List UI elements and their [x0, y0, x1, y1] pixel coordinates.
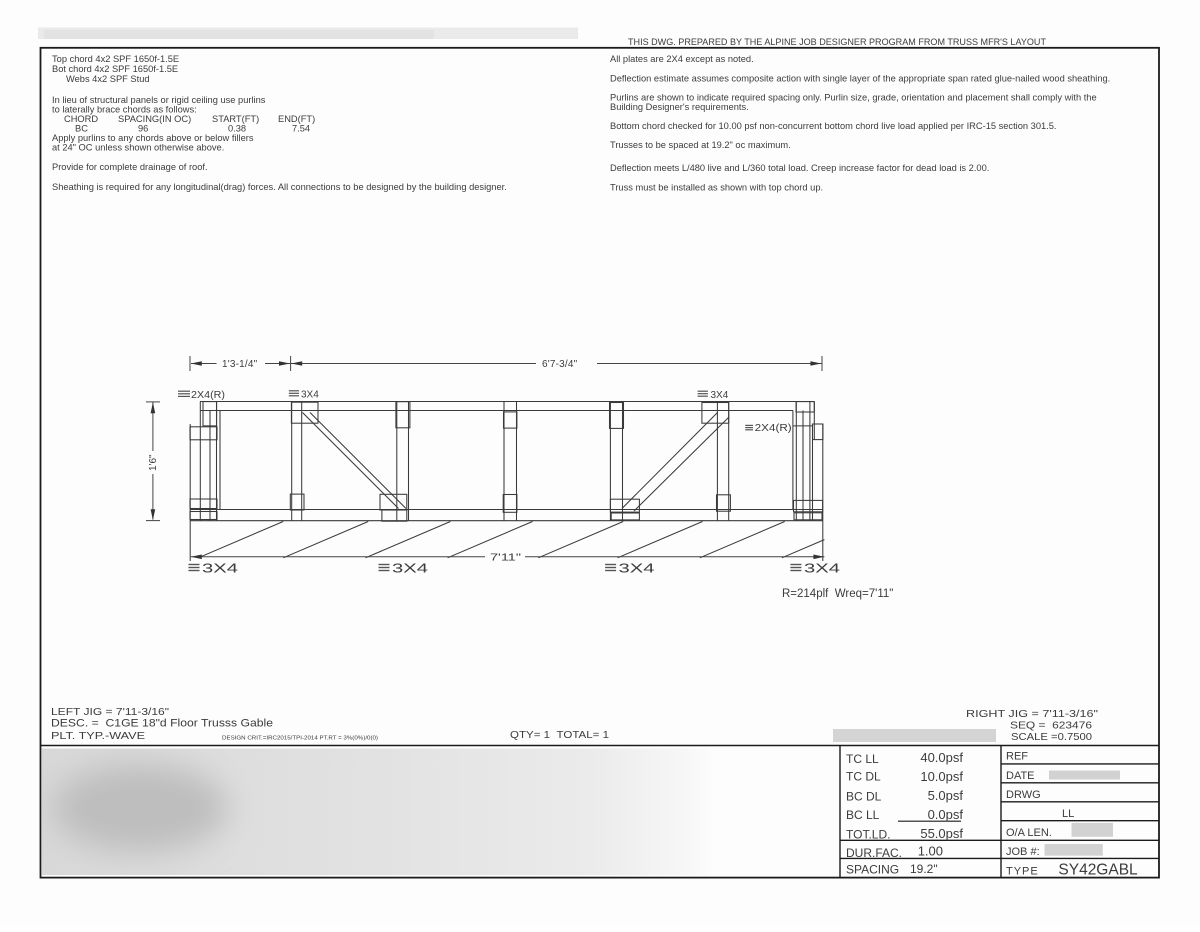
svg-text:REF: REF: [1006, 751, 1028, 763]
svg-text:DRWG: DRWG: [1006, 789, 1041, 801]
svg-text:0.0psf: 0.0psf: [928, 807, 964, 822]
svg-text:1'3-1/4": 1'3-1/4": [222, 359, 258, 370]
svg-text:SY42GABL: SY42GABL: [1058, 862, 1138, 879]
svg-text:Trusses to be spaced at 19.2": Trusses to be spaced at 19.2" oc maximum…: [610, 140, 791, 150]
svg-text:3X4: 3X4: [392, 561, 428, 576]
svg-text:JOB #:: JOB #:: [1006, 846, 1040, 858]
svg-text:Top chord 4x2 SPF 1650f-1.5E: Top chord 4x2 SPF 1650f-1.5E: [52, 54, 179, 64]
svg-text:SEQ = 623476: SEQ = 623476: [1010, 720, 1092, 732]
svg-text:19.2": 19.2": [910, 862, 938, 876]
svg-text:40.0psf: 40.0psf: [920, 750, 963, 765]
svg-text:DESC. = C1GE 18"d Floor Truss: DESC. = C1GE 18"d Floor Trusss Gable: [51, 718, 273, 730]
svg-text:55.0psf: 55.0psf: [920, 826, 963, 841]
svg-text:RIGHT JIG = 7'11-3/16": RIGHT JIG = 7'11-3/16": [966, 708, 1098, 720]
svg-text:LEFT JIG = 7'11-3/16": LEFT JIG = 7'11-3/16": [51, 707, 170, 718]
svg-text:PLT. TYP.-WAVE: PLT. TYP.-WAVE: [51, 730, 145, 742]
svg-text:3X4: 3X4: [711, 390, 729, 401]
svg-text:10.0psf: 10.0psf: [920, 769, 963, 784]
svg-text:1.00: 1.00: [918, 844, 943, 859]
svg-text:Deflection meets L/480 live an: Deflection meets L/480 live and L/360 to…: [610, 163, 989, 173]
svg-text:TC DL: TC DL: [846, 770, 881, 784]
svg-text:TC LL: TC LL: [846, 752, 879, 766]
svg-text:DESIGN CRIT.=IRC2015/TPI-2014: DESIGN CRIT.=IRC2015/TPI-2014 PT.RT = 3%…: [222, 736, 378, 742]
svg-text:Truss must be installed as sho: Truss must be installed as shown with to…: [610, 183, 823, 193]
svg-text:to laterally brace chords as f: to laterally brace chords as follows:: [52, 105, 197, 115]
svg-text:6'7-3/4": 6'7-3/4": [542, 359, 578, 370]
svg-text:Bottom chord checked for 10.00: Bottom chord checked for 10.00 psf non-c…: [610, 121, 1057, 131]
svg-text:3X4: 3X4: [202, 561, 238, 576]
svg-text:7.54: 7.54: [292, 124, 310, 134]
svg-text:Purlins are shown to indicate: Purlins are shown to indicate required s…: [610, 93, 1097, 103]
svg-text:3X4: 3X4: [619, 561, 655, 576]
svg-text:LL: LL: [1062, 808, 1074, 820]
svg-text:SCALE =0.7500: SCALE =0.7500: [1011, 731, 1092, 743]
svg-text:BC: BC: [75, 124, 88, 134]
svg-text:TYPE: TYPE: [1006, 866, 1039, 878]
svg-text:Webs 4x2 SPF Stud: Webs 4x2 SPF Stud: [66, 74, 150, 84]
svg-text:QTY= 1 TOTAL= 1: QTY= 1 TOTAL= 1: [510, 729, 609, 741]
svg-text:All plates are 2X4 except as n: All plates are 2X4 except as noted.: [610, 54, 754, 64]
svg-text:CHORD: CHORD: [64, 114, 98, 124]
svg-text:Provide for complete drainage: Provide for complete drainage of roof.: [52, 162, 208, 172]
svg-text:2X4(R): 2X4(R): [755, 423, 792, 434]
svg-text:7'11": 7'11": [490, 552, 521, 564]
svg-text:5.0psf: 5.0psf: [928, 788, 964, 803]
svg-text:R=214plf Wreq=7'11": R=214plf Wreq=7'11": [782, 588, 893, 600]
svg-text:2X4(R): 2X4(R): [191, 390, 225, 401]
svg-text:THIS DWG. PREPARED BY THE ALPI: THIS DWG. PREPARED BY THE ALPINE JOB DES…: [628, 37, 1046, 47]
svg-text:Bot chord 4x2 SPF 1650f-1.5E: Bot chord 4x2 SPF 1650f-1.5E: [52, 64, 178, 74]
svg-text:3X4: 3X4: [804, 561, 840, 576]
svg-text:Apply purlins to any chords ab: Apply purlins to any chords above or bel…: [52, 133, 254, 143]
svg-text:1'6": 1'6": [148, 454, 159, 471]
svg-text:3X4: 3X4: [301, 390, 319, 401]
svg-text:END(FT): END(FT): [278, 114, 315, 124]
svg-text:at 24" OC unless shown otherwi: at 24" OC unless shown otherwise above.: [52, 143, 224, 153]
svg-text:DUR.FAC.: DUR.FAC.: [846, 846, 902, 860]
svg-text:In lieu of structural panels o: In lieu of structural panels or rigid ce…: [52, 95, 266, 105]
svg-text:Sheathing is required for any: Sheathing is required for any longitudin…: [52, 182, 507, 192]
svg-text:Building Designer's requiremen: Building Designer's requirements.: [610, 102, 749, 112]
svg-text:START(FT): START(FT): [212, 114, 259, 124]
svg-text:Deflection estimate assumes co: Deflection estimate assumes composite ac…: [610, 74, 1110, 84]
svg-text:TOT.LD.: TOT.LD.: [846, 828, 890, 842]
svg-text:0.38: 0.38: [228, 124, 246, 134]
svg-text:DATE: DATE: [1006, 770, 1035, 782]
svg-text:O/A LEN.: O/A LEN.: [1006, 827, 1052, 839]
svg-text:BC DL: BC DL: [846, 790, 882, 804]
svg-text:96: 96: [138, 124, 148, 134]
svg-text:SPACING: SPACING: [846, 862, 899, 876]
svg-text:SPACING(IN OC): SPACING(IN OC): [118, 114, 191, 124]
svg-text:BC LL: BC LL: [846, 808, 880, 822]
